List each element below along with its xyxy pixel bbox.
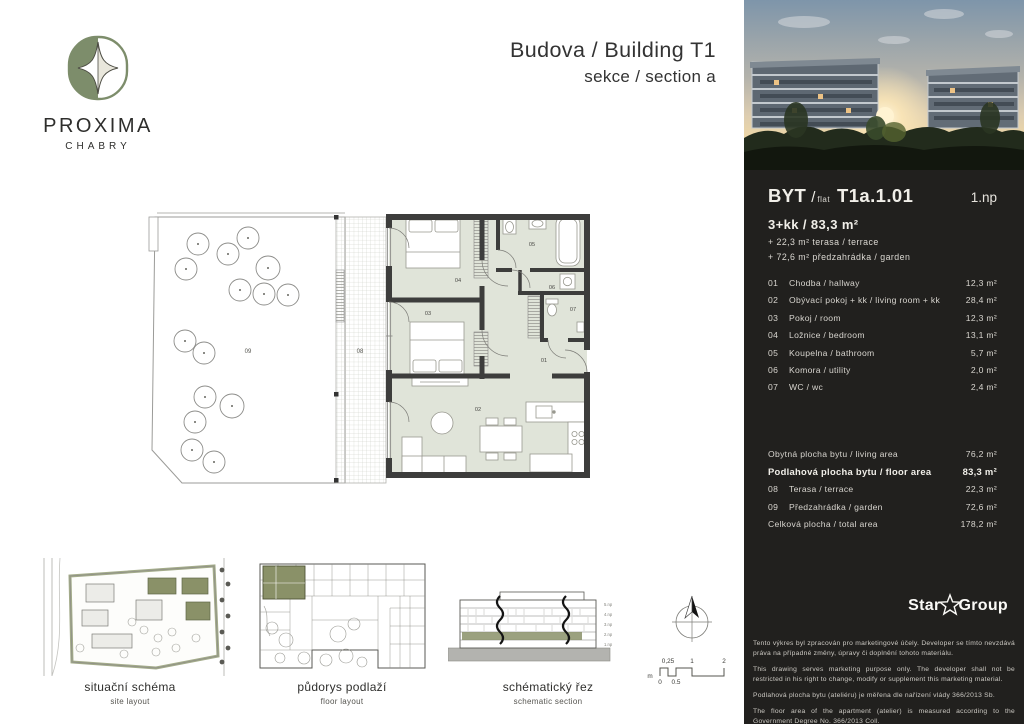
flat-word: BYT — [768, 185, 806, 207]
summary-row: Obytná plocha bytu / living area 76,2 m² — [768, 446, 997, 464]
summary-row: 08 Terasa / terrace 22,3 m² — [768, 481, 997, 499]
scale-bar: 0,25 1 2 0 0,5 m — [647, 658, 726, 684]
schematic-section-diagram: 5.np 4.np 3.np 2.np 1.np — [448, 586, 620, 674]
area-summary: Obytná plocha bytu / living area 76,2 m²… — [768, 446, 997, 534]
summary-name: Podlahová plocha bytu / floor area — [768, 463, 963, 481]
room-name: Ložnice / bedroom — [789, 327, 966, 344]
brochure-page: PROXIMA CHABRY Budova / Building T1 sekc… — [0, 0, 1024, 724]
floor-layout-title: půdorys podlaží — [252, 680, 432, 694]
svg-text:5.np: 5.np — [604, 602, 613, 607]
section-floor-labels: 5.np 4.np 3.np 2.np 1.np — [604, 602, 613, 647]
extra-garden: + 72,6 m² předzahrádka / garden — [768, 252, 997, 262]
table-row: 04 Ložnice / bedroom 13,1 m² — [768, 327, 997, 344]
disclaimer-cz-1: Tento výkres byl zpracován pro marketing… — [753, 639, 1015, 659]
room-area: 5,7 m² — [971, 345, 997, 362]
brand-name: PROXIMA — [40, 115, 156, 138]
room-num: 05 — [768, 345, 789, 362]
summary-area: 76,2 m² — [966, 446, 997, 464]
room-num: 04 — [768, 327, 789, 344]
floor-layout-subtitle: floor layout — [252, 697, 432, 706]
flat-title-row: BYT / flat T1a.1.01 1.np — [768, 185, 997, 207]
floor-number: 1.np — [971, 190, 997, 205]
summary-name: Terasa / terrace — [789, 481, 966, 499]
svg-text:06: 06 — [549, 285, 555, 291]
stargroup-logo: Star Group — [908, 593, 1008, 619]
table-row: 06 Komora / utility 2,0 m² — [768, 362, 997, 379]
flat-word-en: flat — [817, 195, 830, 204]
page-title: Budova / Building T1 — [390, 38, 716, 63]
svg-text:0,5: 0,5 — [672, 679, 681, 684]
section-subtitle: schematic section — [458, 697, 638, 706]
summary-name: Celková plocha / total area — [768, 516, 961, 534]
site-layout-title: situační schéma — [40, 680, 220, 694]
room-area: 12,3 m² — [966, 275, 997, 292]
room-area: 12,3 m² — [966, 310, 997, 327]
svg-text:m: m — [647, 673, 652, 680]
page-subtitle: sekce / section a — [390, 67, 716, 87]
proxima-logo-icon — [66, 34, 130, 104]
svg-text:01: 01 — [541, 358, 547, 364]
room-name: Koupelna / bathroom — [789, 345, 971, 362]
svg-text:2.np: 2.np — [604, 632, 613, 637]
garden-label: 09 — [245, 349, 252, 355]
svg-text:1.np: 1.np — [604, 642, 613, 647]
room-name: Pokoj / room — [789, 310, 966, 327]
room-name: Obývací pokoj + kk / living room + kk — [789, 292, 966, 309]
floor-layout-label: půdorys podlaží floor layout — [252, 680, 432, 706]
svg-text:4.np: 4.np — [604, 612, 613, 617]
room-num: 03 — [768, 310, 789, 327]
panel-content: BYT / flat T1a.1.01 1.np 3+kk / 83,3 m² … — [744, 170, 1024, 534]
svg-text:02: 02 — [475, 407, 481, 413]
left-building — [750, 58, 880, 128]
table-row: 03 Pokoj / room 12,3 m² — [768, 310, 997, 327]
room-num: 02 — [768, 292, 789, 309]
brand-city: CHABRY — [40, 141, 156, 152]
summary-num: 08 — [768, 481, 789, 499]
room-area: 2,4 m² — [971, 379, 997, 396]
svg-text:1: 1 — [690, 658, 694, 665]
flat-code: T1a.1.01 — [837, 185, 913, 207]
brand-logo: PROXIMA CHABRY — [40, 34, 156, 152]
stargroup-left: Star — [908, 597, 940, 615]
summary-row-floor-area: Podlahová plocha bytu / floor area 83,3 … — [768, 463, 997, 481]
floor-layout-diagram — [250, 556, 435, 676]
building-photo — [744, 0, 1024, 170]
north-arrow-and-scale: 0,25 1 2 0 0,5 m — [646, 588, 730, 684]
room-num: 07 — [768, 379, 789, 396]
room-area: 13,1 m² — [966, 327, 997, 344]
page-header: Budova / Building T1 sekce / section a — [390, 38, 716, 87]
stargroup-right: Group — [959, 597, 1009, 615]
room-area: 2,0 m² — [971, 362, 997, 379]
room-num: 06 — [768, 362, 789, 379]
svg-text:04: 04 — [455, 278, 461, 284]
summary-area: 83,3 m² — [963, 463, 997, 481]
svg-text:0: 0 — [658, 679, 662, 684]
summary-name: Obytná plocha bytu / living area — [768, 446, 966, 464]
summary-name: Předzahrádka / garden — [789, 499, 966, 517]
summary-area: 178,2 m² — [961, 516, 997, 534]
svg-text:05: 05 — [529, 242, 535, 248]
summary-area: 22,3 m² — [966, 481, 997, 499]
room-table: 01 Chodba / hallway 12,3 m² 02 Obývací p… — [768, 275, 997, 397]
site-layout-diagram — [36, 558, 231, 676]
floor-plan-drawing: 09 08 — [140, 190, 612, 538]
room-name: Komora / utility — [789, 362, 971, 379]
disclaimer-en-1: This drawing serves marketing purpose on… — [753, 665, 1015, 685]
summary-row: 09 Předzahrádka / garden 72,6 m² — [768, 499, 997, 517]
floor-plan: 09 08 — [140, 190, 612, 543]
summary-area: 72,6 m² — [966, 499, 997, 517]
north-arrow-icon — [672, 596, 712, 642]
summary-row-total: Celková plocha / total area 178,2 m² — [768, 516, 997, 534]
flat-separator: / — [811, 189, 815, 206]
room-name: WC / wc — [789, 379, 971, 396]
table-row: 05 Koupelna / bathroom 5,7 m² — [768, 345, 997, 362]
table-row: 02 Obývací pokoj + kk / living room + kk… — [768, 292, 997, 309]
room-num: 01 — [768, 275, 789, 292]
section-title: schématický řez — [458, 680, 638, 694]
disclaimer-block: Tento výkres byl zpracován pro marketing… — [753, 639, 1015, 724]
table-row: 01 Chodba / hallway 12,3 m² — [768, 275, 997, 292]
disposition: 3+kk / 83,3 m² — [768, 217, 997, 232]
svg-text:03: 03 — [425, 311, 431, 317]
disclaimer-cz-2: Podlahová plocha bytu (ateliéru) je měře… — [753, 691, 1015, 701]
extra-terrace: + 22,3 m² terasa / terrace — [768, 237, 997, 247]
room-name: Chodba / hallway — [789, 275, 966, 292]
right-building — [926, 66, 1020, 128]
svg-text:2: 2 — [722, 658, 726, 665]
svg-text:0,25: 0,25 — [662, 658, 675, 665]
site-layout-label: situační schéma site layout — [40, 680, 220, 706]
section-label: schématický řez schematic section — [458, 680, 638, 706]
room-area: 28,4 m² — [966, 292, 997, 309]
svg-text:07: 07 — [570, 307, 576, 313]
terrace-label: 08 — [357, 349, 364, 355]
info-panel: BYT / flat T1a.1.01 1.np 3+kk / 83,3 m² … — [744, 0, 1024, 724]
disclaimer-en-2: The floor area of the apartment (atelier… — [753, 707, 1015, 724]
svg-text:3.np: 3.np — [604, 622, 613, 627]
summary-num: 09 — [768, 499, 789, 517]
table-row: 07 WC / wc 2,4 m² — [768, 379, 997, 396]
site-layout-subtitle: site layout — [40, 697, 220, 706]
